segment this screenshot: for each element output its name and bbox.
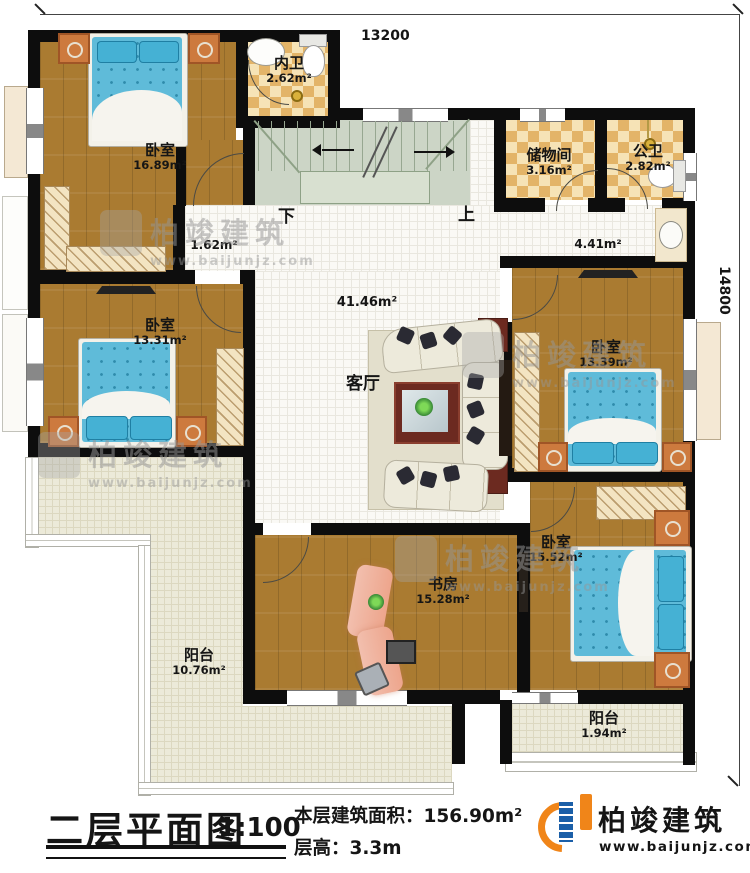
sliding-door [512,692,578,704]
toilet-tank [673,160,686,192]
wall [28,270,195,284]
plant [415,398,433,416]
bed-pillow [658,604,684,650]
bed-pillow [616,442,658,464]
tv [578,270,638,278]
tv [96,286,156,294]
tv-cabinet [499,360,512,456]
plant [368,594,384,610]
brand-url: www.baijunjz.com [599,839,750,855]
room-label-bedroom-ml: 卧室 13.31m² [133,316,186,348]
wall [565,108,606,120]
room-label-balcony-left: 阳台 10.76m² [172,646,225,678]
area-label-hall-right: 4.41m² [574,237,621,251]
sofa-pillow [443,465,461,483]
window-bay [695,322,721,440]
floor-area-text: 本层建筑面积：156.90m² [294,802,522,828]
room-label-balcony-right: 阳台 1.94m² [581,709,626,741]
window [363,108,448,122]
logo-building-blue [554,798,578,846]
stair-arrowhead-left [312,144,321,156]
sofa-bottom [383,459,489,512]
nightstand [662,442,692,472]
window [683,319,697,441]
wall [683,108,695,153]
nightstand [188,33,220,64]
window [26,318,44,426]
floor-balcony-left-c [150,706,452,782]
nightstand [48,416,79,447]
shower-line [647,120,649,138]
dimension-top-label: 13200 [358,28,413,44]
floor-balcony-left-b [150,534,243,706]
logo-building-orange [580,794,592,830]
wall [311,523,530,535]
window [520,108,565,122]
room-label-inner-bath: 内卫 2.62m² [266,54,311,86]
drawing-scale: 1:100 [218,813,301,843]
bed-pillow [86,416,128,440]
floor-drain [291,90,303,102]
wall [240,270,255,284]
dimension-line-top [40,14,740,15]
stair-arrowhead-right [446,146,455,158]
bed-pillow [658,556,684,602]
bed-pillow [139,41,179,63]
area-label-hall-small: 1.62m² [190,238,237,252]
sink [659,221,683,249]
stair-arrow-left [322,149,354,151]
stairs-up-label: 上 [458,200,475,225]
dimension-tick [727,775,738,786]
balcony-railing [505,752,697,772]
nightstand [538,442,568,472]
floor-balcony-left-a [38,457,250,534]
floor-height-text: 层高：3.3m [294,834,402,860]
window-bay [2,196,28,310]
window-bay [4,86,28,178]
wardrobe [66,246,166,272]
bed-sheet [618,550,654,656]
wall [28,42,40,88]
wall [577,690,695,704]
tv [519,552,528,612]
balcony-railing [138,782,454,795]
wardrobe [514,332,540,472]
wall [255,523,263,535]
wall [494,108,520,120]
wall [28,174,40,320]
floor-plan: 13200 14800 [0,0,750,873]
wall [500,700,512,764]
wall [494,108,506,210]
wall [255,690,287,704]
nightstand [176,416,207,447]
stairs-down-label: 下 [278,202,295,227]
wall [407,690,500,704]
sofa-pillow [467,373,485,391]
bed-sheet [568,418,656,444]
wall [173,205,185,271]
dimension-tick [34,3,45,14]
stair-arrow-right [414,151,446,153]
dimension-right-label: 14800 [716,266,732,315]
room-label-storage: 储物间 3.16m² [526,146,571,178]
brand-logo-icon [538,794,596,858]
computer-monitor [386,640,416,664]
room-label-living: 客厅 [346,374,380,394]
bed-pillow [572,442,614,464]
dimension-tick [732,3,743,14]
room-label-bedroom-br: 卧室 15.52m² [529,533,582,565]
nightstand [58,33,90,64]
room-label-study: 书房 15.28m² [416,575,469,607]
window-bay [2,314,28,432]
wall [606,108,695,120]
stair-treads [258,121,467,171]
wall [494,198,545,212]
balcony-railing [138,545,151,796]
room-label-bedroom-tl: 卧室 16.89m² [133,141,186,173]
room-label-public-bath: 公卫 2.82m² [625,142,670,174]
wall [243,284,255,704]
wall [452,704,465,764]
nightstand [654,510,690,546]
bed-pillow [130,416,172,440]
brand-name: 柏竣建筑 [598,799,726,839]
area-label-living: 41.46m² [337,295,397,311]
bed-pillow [97,41,137,63]
dimension-line-right [739,14,740,786]
window [26,88,44,174]
room-label-bedroom-mr: 卧室 13.39m² [579,338,632,370]
floor-stair-side [470,120,494,205]
wall [243,120,255,205]
bed-sheet [82,391,170,419]
stair-landing [300,171,430,204]
wall [330,108,363,120]
balcony-railing [25,534,151,547]
nightstand [654,652,690,688]
title-underline [46,845,286,859]
wardrobe [216,348,244,446]
